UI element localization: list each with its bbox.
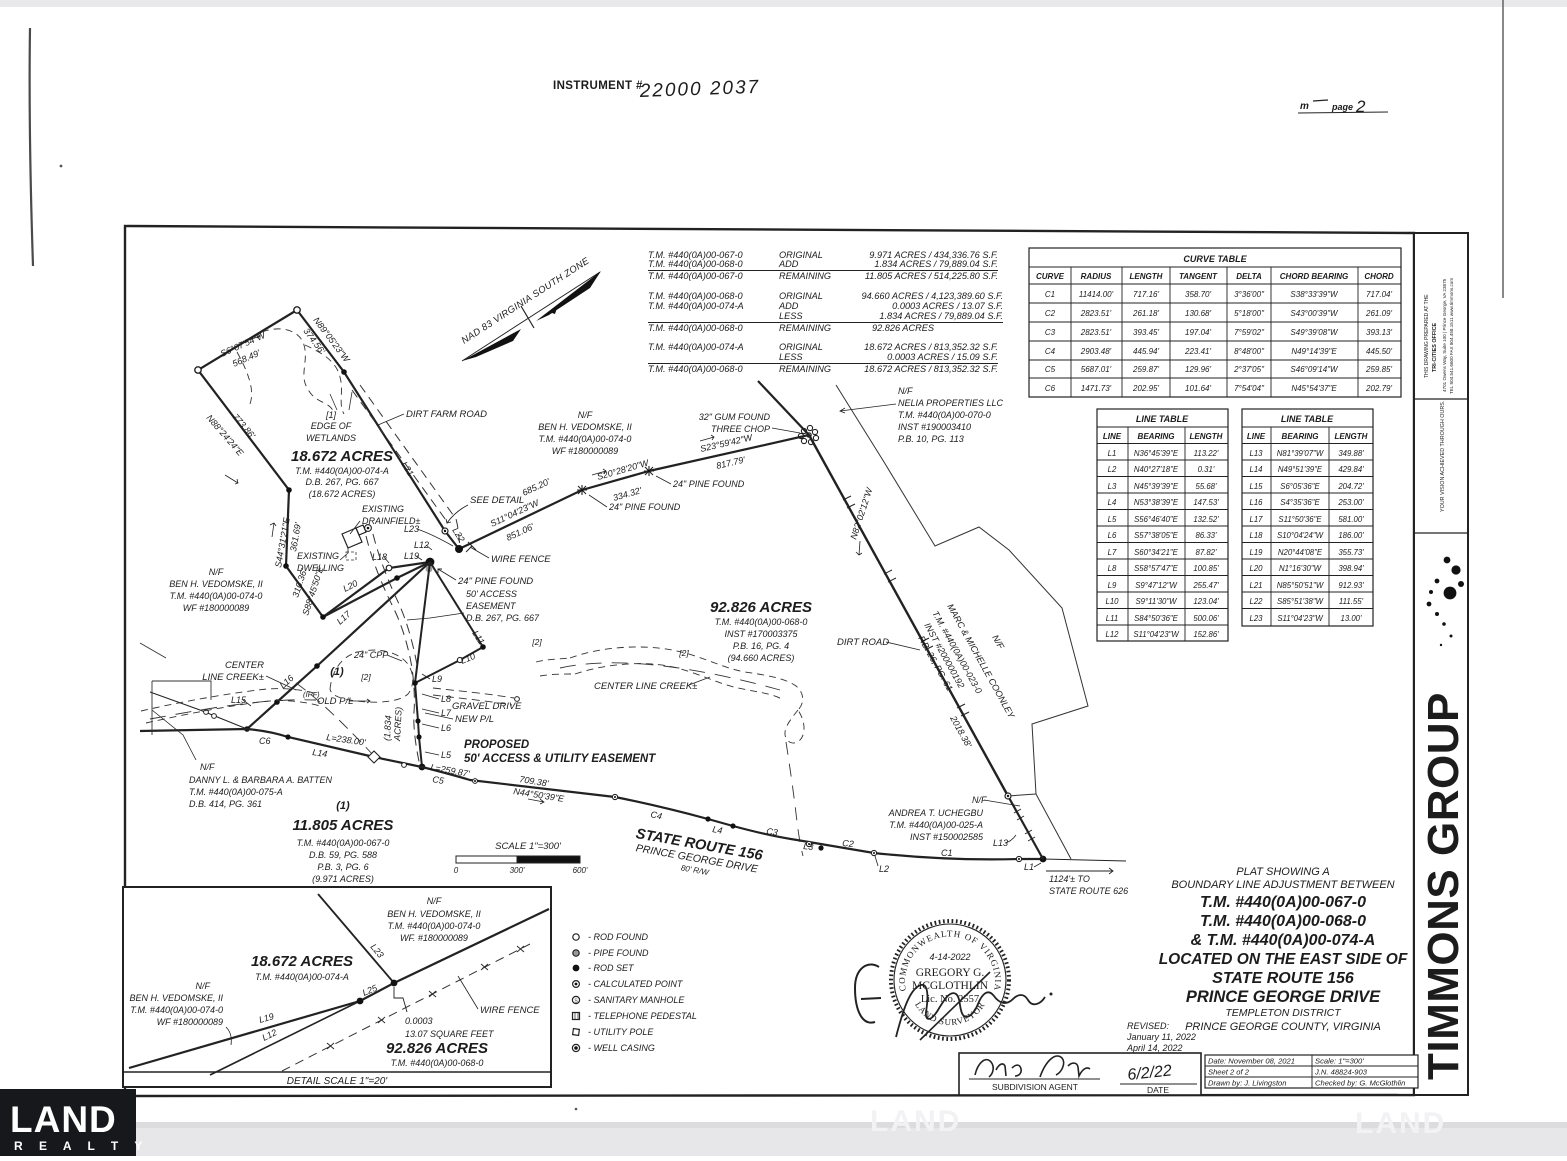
svg-text:LINE: LINE [1247, 432, 1266, 441]
svg-text:TRI-CITIES OFFICE: TRI-CITIES OFFICE [1432, 322, 1438, 372]
svg-text:T.M. #440(0A)00-068-0: T.M. #440(0A)00-068-0 [391, 1058, 484, 1068]
svg-text:S46°09'14"W: S46°09'14"W [1290, 365, 1339, 374]
svg-text:C2: C2 [1045, 309, 1056, 318]
svg-text:11.805 ACRES: 11.805 ACRES [293, 817, 394, 834]
svg-text:BEN H. VEDOMSKE, II: BEN H. VEDOMSKE, II [169, 579, 263, 589]
svg-text:0: 0 [454, 866, 459, 875]
svg-text:L5: L5 [1108, 515, 1117, 524]
svg-text:L10: L10 [1105, 597, 1119, 606]
svg-text:123.04': 123.04' [1193, 597, 1219, 606]
svg-text:T.M. #440(0A)00-067-0: T.M. #440(0A)00-067-0 [297, 838, 390, 848]
svg-text:T.M. #440(0A)00-068-0: T.M. #440(0A)00-068-0 [648, 323, 744, 333]
svg-text:T.M. #440(0A)00-074-0: T.M. #440(0A)00-074-0 [170, 591, 263, 601]
svg-text:TANGENT: TANGENT [1179, 272, 1218, 281]
svg-text:204.72': 204.72' [1337, 482, 1364, 491]
svg-text:L6: L6 [441, 723, 451, 733]
svg-text:92.826 ACRES: 92.826 ACRES [386, 1040, 488, 1057]
svg-text:SUBDIVISION AGENT: SUBDIVISION AGENT [992, 1082, 1078, 1092]
svg-text:L16: L16 [1249, 498, 1263, 507]
svg-text:EASEMENT: EASEMENT [466, 601, 517, 611]
svg-text:18.672 ACRES / 813,352.32 S.F.: 18.672 ACRES / 813,352.32 S.F. [864, 364, 998, 374]
svg-text:T.M. #440(0A)00-070-0: T.M. #440(0A)00-070-0 [898, 410, 991, 420]
svg-text:L22: L22 [1249, 597, 1263, 606]
svg-text:197.04': 197.04' [1185, 328, 1211, 337]
svg-text:L7: L7 [1108, 548, 1117, 557]
svg-text:S58°57'47"E: S58°57'47"E [1134, 564, 1179, 573]
svg-text:L21: L21 [1249, 581, 1262, 590]
svg-text:130.68': 130.68' [1185, 309, 1211, 318]
svg-text:REMAINING: REMAINING [779, 364, 831, 374]
svg-text:[1]: [1] [325, 410, 337, 420]
svg-text:C3: C3 [766, 826, 779, 838]
svg-text:January 11, 2022: January 11, 2022 [1126, 1032, 1196, 1042]
svg-text:259.85': 259.85' [1365, 365, 1392, 374]
svg-text:C2: C2 [842, 838, 854, 849]
svg-text:NEW P/L: NEW P/L [455, 714, 494, 725]
svg-text:S57°38'05"E: S57°38'05"E [1134, 531, 1179, 540]
svg-text:LENGTH: LENGTH [1130, 272, 1163, 281]
svg-text:R E A L T Y: R E A L T Y [14, 1139, 149, 1153]
svg-text:DETAIL SCALE 1"=20': DETAIL SCALE 1"=20' [287, 1076, 389, 1087]
svg-text:L14: L14 [1249, 465, 1263, 474]
svg-text:WETLANDS: WETLANDS [306, 433, 356, 443]
svg-text:DWELLING: DWELLING [297, 563, 344, 573]
svg-text:2903.48': 2903.48' [1080, 347, 1112, 356]
svg-text:N45°54'37"E: N45°54'37"E [1291, 384, 1337, 393]
svg-text:358.70': 358.70' [1185, 290, 1211, 299]
svg-text:32" GUM FOUND: 32" GUM FOUND [699, 412, 771, 422]
svg-text:L4: L4 [712, 824, 724, 836]
svg-text:Date: November 08, 2021: Date: November 08, 2021 [1208, 1057, 1295, 1066]
svg-text:- PIPE FOUND: - PIPE FOUND [588, 948, 649, 958]
svg-text:L13: L13 [1249, 449, 1263, 458]
svg-text:Drawn by: J. Livingston: Drawn by: J. Livingston [1208, 1079, 1287, 1088]
svg-text:N/F: N/F [209, 567, 224, 577]
svg-text:ORIGINAL: ORIGINAL [779, 291, 823, 301]
svg-text:N85°50'51"W: N85°50'51"W [1277, 581, 1324, 590]
svg-text:1.834 ACRES / 79,889.04 S.F: 1.834 ACRES / 79,889.04 S.F. [879, 311, 1003, 321]
svg-text:186.00': 186.00' [1338, 531, 1364, 540]
svg-text:EDGE OF: EDGE OF [311, 421, 352, 431]
svg-text:L11: L11 [1106, 614, 1118, 623]
svg-text:TEMPLETON DISTRICT: TEMPLETON DISTRICT [1225, 1007, 1342, 1019]
svg-text:L19: L19 [404, 551, 419, 561]
svg-text:T.M. #440(0A)00-068-0: T.M. #440(0A)00-068-0 [648, 364, 744, 374]
svg-text:CHORD BEARING: CHORD BEARING [1280, 272, 1348, 281]
svg-text:BEARING: BEARING [1138, 432, 1175, 441]
svg-text:EXISTING: EXISTING [297, 551, 339, 561]
svg-text:DATE: DATE [1147, 1085, 1169, 1095]
svg-text:LAND: LAND [870, 1105, 961, 1138]
svg-text:(18.672 ACRES): (18.672 ACRES) [309, 489, 376, 499]
svg-text:N20°44'08"E: N20°44'08"E [1278, 548, 1323, 557]
svg-text:S9°11'30"W: S9°11'30"W [1135, 597, 1177, 606]
svg-text:912.93': 912.93' [1338, 581, 1364, 590]
svg-text:1124'± TO: 1124'± TO [1049, 874, 1090, 884]
svg-text:5687.01': 5687.01' [1081, 365, 1112, 374]
svg-text:PLAT SHOWING A: PLAT SHOWING A [1236, 866, 1330, 878]
svg-text:EXISTING: EXISTING [362, 504, 404, 514]
svg-text:T.M. #440(0A)00-074-A: T.M. #440(0A)00-074-A [648, 301, 744, 311]
svg-text:5°18'00": 5°18'00" [1234, 309, 1265, 318]
svg-text:18.672 ACRES / 813,352.32 S.F.: 18.672 ACRES / 813,352.32 S.F. [864, 342, 998, 352]
svg-text:SCALE 1"=300': SCALE 1"=300' [495, 841, 562, 852]
svg-text:INST #190003410: INST #190003410 [898, 422, 971, 432]
svg-text:2°37'05": 2°37'05" [1233, 365, 1265, 374]
svg-text:255.47': 255.47' [1192, 581, 1219, 590]
svg-text:N53°38'39"E: N53°38'39"E [1134, 498, 1179, 507]
svg-text:ADD: ADD [778, 301, 799, 311]
svg-text:Sheet 2 of 2: Sheet 2 of 2 [1208, 1068, 1250, 1077]
svg-text:L17: L17 [1249, 515, 1263, 524]
svg-text:GREGORY G.: GREGORY G. [916, 967, 985, 979]
svg-text:L8: L8 [1108, 564, 1117, 573]
svg-text:L5: L5 [441, 750, 452, 760]
svg-text:N/F: N/F [427, 896, 442, 906]
svg-text:18.672 ACRES: 18.672 ACRES [251, 953, 353, 970]
svg-text:259.87': 259.87' [1132, 365, 1159, 374]
svg-text:L19: L19 [1249, 548, 1263, 557]
svg-text:LINE TABLE: LINE TABLE [1281, 414, 1334, 424]
svg-text:92.826 ACRES: 92.826 ACRES [710, 599, 812, 616]
svg-text:24" PINE FOUND: 24" PINE FOUND [457, 576, 533, 587]
svg-text:C1: C1 [941, 848, 953, 858]
svg-text:WF #180000089: WF #180000089 [157, 1017, 223, 1027]
svg-text:WIRE FENCE: WIRE FENCE [480, 1005, 540, 1016]
svg-text:P.B. 10, PG. 113: P.B. 10, PG. 113 [898, 434, 964, 444]
svg-text:REMAINING: REMAINING [779, 271, 831, 281]
svg-text:TEL 804.541.6600 FAX 804.458.: TEL 804.541.6600 FAX 804.458.1511 www.ti… [1449, 278, 1454, 394]
svg-text:C1: C1 [1045, 290, 1055, 299]
svg-text:398.94': 398.94' [1338, 564, 1364, 573]
svg-text:3°36'00": 3°36'00" [1234, 290, 1265, 299]
svg-text:11414.00': 11414.00' [1079, 290, 1114, 299]
svg-text:4-14-2022: 4-14-2022 [929, 952, 970, 962]
svg-text:T.M. #440(0A)00-025-A: T.M. #440(0A)00-025-A [889, 820, 983, 830]
svg-text:THIS DRAWING PREPARED AT THE: THIS DRAWING PREPARED AT THE [1424, 294, 1430, 378]
svg-text:147.53': 147.53' [1193, 498, 1219, 507]
svg-text:THREE CHOP: THREE CHOP [711, 424, 770, 434]
svg-text:(IPF): (IPF) [303, 690, 320, 699]
svg-text:L9: L9 [432, 674, 442, 684]
svg-text:N49°51'39"E: N49°51'39"E [1278, 465, 1323, 474]
svg-text:STATE ROUTE 156: STATE ROUTE 156 [1212, 970, 1354, 987]
svg-text:REVISED:: REVISED: [1127, 1021, 1170, 1031]
svg-text:N/F: N/F [196, 981, 211, 991]
svg-text:0.31': 0.31' [1198, 465, 1215, 474]
svg-text:T.M. #440(0A)00-074-A: T.M. #440(0A)00-074-A [255, 972, 349, 982]
svg-text:LINE TABLE: LINE TABLE [1136, 414, 1189, 424]
svg-text:202.95': 202.95' [1132, 384, 1159, 393]
svg-text:D.B. 414, PG. 361: D.B. 414, PG. 361 [189, 799, 262, 809]
svg-text:N45°39'39"E: N45°39'39"E [1134, 482, 1179, 491]
svg-text:N/F: N/F [898, 386, 913, 396]
svg-text:86.33': 86.33' [1196, 531, 1218, 540]
svg-text:LESS: LESS [779, 352, 803, 362]
svg-text:24" PINE FOUND: 24" PINE FOUND [672, 479, 745, 489]
svg-text:L15: L15 [231, 695, 247, 705]
svg-text:L4: L4 [1108, 498, 1117, 507]
svg-text:L12: L12 [1105, 630, 1119, 639]
svg-text:429.84': 429.84' [1338, 465, 1364, 474]
svg-text:D.B. 267, PG. 667: D.B. 267, PG. 667 [305, 477, 379, 487]
svg-text:S4°35'36"E: S4°35'36"E [1280, 498, 1320, 507]
svg-text:0.0003 ACRES / 13.07: 0.0003 ACRES / 13.07 S.F. [892, 301, 1003, 311]
svg-text:L8: L8 [441, 694, 451, 704]
svg-text:ADD: ADD [778, 259, 799, 269]
svg-text:L1: L1 [1108, 449, 1117, 458]
svg-text:S60°34'21"E: S60°34'21"E [1134, 548, 1179, 557]
svg-text:13.00': 13.00' [1341, 614, 1363, 623]
svg-text:S9°47'12"W: S9°47'12"W [1135, 581, 1177, 590]
svg-text:RADIUS: RADIUS [1081, 272, 1112, 281]
svg-text:S38°33'39"W: S38°33'39"W [1290, 290, 1339, 299]
svg-text:[2]: [2] [678, 648, 689, 658]
svg-text:BEARING: BEARING [1282, 432, 1319, 441]
svg-text:DANNY L. & BARBARA A. BATTEN: DANNY L. & BARBARA A. BATTEN [189, 775, 333, 785]
svg-text:111.55': 111.55' [1339, 597, 1364, 606]
svg-text:C3: C3 [1045, 328, 1056, 337]
svg-text:113.22': 113.22' [1194, 449, 1219, 458]
svg-text:LESS: LESS [779, 311, 803, 321]
svg-text:S84°50'36"E: S84°50'36"E [1134, 614, 1179, 623]
svg-text:P.B. 3, PG. 6: P.B. 3, PG. 6 [317, 862, 368, 872]
svg-text:DIRT ROAD: DIRT ROAD [837, 637, 889, 648]
svg-text:92.826 ACRES: 92.826 ACRES [872, 323, 935, 333]
svg-text:LENGTH: LENGTH [1190, 432, 1223, 441]
svg-text:LAND: LAND [1355, 1107, 1446, 1140]
svg-text:Scale: 1"=300': Scale: 1"=300' [1315, 1057, 1364, 1066]
svg-text:(9.971 ACRES): (9.971 ACRES) [312, 874, 374, 884]
svg-text:S11°04'23"W: S11°04'23"W [1277, 614, 1323, 623]
svg-text:261.09': 261.09' [1365, 309, 1392, 318]
svg-text:[2]: [2] [531, 637, 542, 647]
svg-text:717.16': 717.16' [1133, 290, 1159, 299]
svg-text:- UTILITY POLE: - UTILITY POLE [588, 1027, 654, 1037]
svg-text:600': 600' [573, 866, 588, 875]
svg-text:BOUNDARY LINE ADJUSTMENT BETWE: BOUNDARY LINE ADJUSTMENT BETWEEN [1171, 879, 1394, 891]
svg-text:PRINCE GEORGE COUNTY, VIRGINIA: PRINCE GEORGE COUNTY, VIRGINIA [1185, 1021, 1381, 1033]
svg-text:87.82': 87.82' [1196, 548, 1218, 557]
svg-text:Lic. No. 2557: Lic. No. 2557 [921, 994, 979, 1005]
svg-text:S85°51'38"W: S85°51'38"W [1277, 597, 1324, 606]
svg-text:CHORD: CHORD [1364, 272, 1394, 281]
svg-text:T.M. #440(0A)00-074-A: T.M. #440(0A)00-074-A [295, 466, 389, 476]
svg-text:DELTA: DELTA [1236, 272, 1262, 281]
svg-text:T.M. #440(0A)00-067-0: T.M. #440(0A)00-067-0 [1200, 894, 1366, 911]
svg-text:L14: L14 [312, 747, 328, 759]
svg-text:Checked by: G. McGlothlin: Checked by: G. McGlothlin [1315, 1079, 1405, 1088]
svg-text:L23: L23 [1249, 614, 1263, 623]
svg-text:- ROD FOUND: - ROD FOUND [588, 932, 648, 942]
svg-text:TIMMONS GROUP: TIMMONS GROUP [1419, 692, 1468, 1080]
svg-text:WIRE FENCE: WIRE FENCE [491, 554, 551, 565]
svg-text:REMAINING: REMAINING [779, 323, 831, 333]
svg-text:L9: L9 [1108, 581, 1117, 590]
svg-text:LAND: LAND [10, 1099, 117, 1140]
svg-text:ANDREA T. UCHEGBU: ANDREA T. UCHEGBU [888, 808, 984, 818]
svg-text:T.M. #440(0A)00-068-0: T.M. #440(0A)00-068-0 [648, 259, 744, 269]
svg-text:445.94': 445.94' [1133, 347, 1159, 356]
svg-text:L1: L1 [1024, 862, 1034, 872]
svg-text:PRINCE GEORGE DRIVE: PRINCE GEORGE DRIVE [1186, 988, 1381, 1006]
svg-text:- TELEPHONE PEDESTAL: - TELEPHONE PEDESTAL [588, 1011, 697, 1021]
svg-text:- SANITARY MANHOLE: - SANITARY MANHOLE [588, 995, 685, 1005]
svg-text:94.660 ACRES / 4,123,389.60 S.: 94.660 ACRES / 4,123,389.60 S.F. [862, 291, 1004, 301]
svg-text:N/F: N/F [578, 410, 593, 420]
svg-text:13.07 SQUARE FEET: 13.07 SQUARE FEET [405, 1029, 495, 1039]
svg-text:m: m [1300, 101, 1309, 112]
svg-text:April 14, 2022: April 14, 2022 [1126, 1043, 1183, 1053]
svg-text:355.73': 355.73' [1338, 548, 1364, 557]
svg-text:L20: L20 [1249, 564, 1263, 573]
svg-text:N1°16'30"W: N1°16'30"W [1279, 564, 1322, 573]
svg-text:INSTRUMENT #: INSTRUMENT # [553, 80, 643, 92]
svg-text:LINE: LINE [1103, 432, 1122, 441]
svg-text:CURVE: CURVE [1036, 272, 1065, 281]
svg-text:349.88': 349.88' [1338, 449, 1364, 458]
svg-text:ORIGINAL: ORIGINAL [779, 342, 823, 352]
svg-text:T.M. #440(0A)00-074-0: T.M. #440(0A)00-074-0 [539, 434, 632, 444]
svg-text:N40°27'18"E: N40°27'18"E [1134, 465, 1179, 474]
svg-text:CURVE TABLE: CURVE TABLE [1183, 254, 1247, 264]
svg-text:393.13': 393.13' [1366, 328, 1392, 337]
svg-text:18.672 ACRES: 18.672 ACRES [291, 448, 393, 465]
svg-text:L23: L23 [404, 524, 419, 534]
svg-text:- CALCULATED POINT: - CALCULATED POINT [588, 979, 684, 989]
svg-text:4701 Owens Way, Suite 100 | Pr: 4701 Owens Way, Suite 100 | Prince Georg… [1442, 278, 1447, 392]
svg-text:P.B. 16, PG. 4: P.B. 16, PG. 4 [733, 641, 789, 651]
svg-text:S6°05'36"E: S6°05'36"E [1280, 482, 1320, 491]
svg-text:2: 2 [1355, 97, 1366, 116]
svg-text:GRAVEL DRIVE: GRAVEL DRIVE [452, 701, 522, 712]
svg-text:L18: L18 [1249, 531, 1263, 540]
svg-text:LINE CREEK±: LINE CREEK± [202, 672, 264, 683]
svg-text:T.M. #440(0A)00-074-0: T.M. #440(0A)00-074-0 [130, 1005, 223, 1015]
svg-text:T.M. #440(0A)00-067-0: T.M. #440(0A)00-067-0 [648, 271, 744, 281]
svg-text:L2: L2 [1108, 465, 1117, 474]
svg-text:202.79': 202.79' [1365, 384, 1392, 393]
svg-text:8°48'00": 8°48'00" [1234, 347, 1265, 356]
svg-text:55.68': 55.68' [1196, 482, 1218, 491]
svg-text:T.M. #440(0A)00-074-0: T.M. #440(0A)00-074-0 [388, 921, 481, 931]
svg-text:T.M. #440(0A)00-068-0: T.M. #440(0A)00-068-0 [648, 291, 744, 301]
svg-text:T.M. #440(0A)00-074-A: T.M. #440(0A)00-074-A [648, 342, 744, 352]
svg-text:N36°45'39"E: N36°45'39"E [1134, 449, 1179, 458]
svg-text:L3: L3 [1108, 482, 1117, 491]
svg-text:261.18': 261.18' [1132, 309, 1159, 318]
svg-text:N49°14'39"E: N49°14'39"E [1291, 347, 1337, 356]
svg-text:7°54'04": 7°54'04" [1234, 384, 1265, 393]
svg-text:50' ACCESS: 50' ACCESS [466, 589, 517, 599]
svg-text:OLD P/L: OLD P/L [317, 696, 353, 707]
svg-text:C4: C4 [1045, 347, 1056, 356]
svg-text:ACRES): ACRES) [392, 707, 404, 742]
svg-text:CENTER: CENTER [225, 660, 264, 671]
svg-text:581.00': 581.00' [1338, 515, 1364, 524]
svg-text:1471.73': 1471.73' [1081, 384, 1112, 393]
svg-text:PROPOSED: PROPOSED [464, 739, 529, 751]
svg-text:(1): (1) [330, 666, 344, 678]
svg-text:S49°39'08"W: S49°39'08"W [1290, 328, 1339, 337]
svg-text:132.52': 132.52' [1193, 515, 1219, 524]
svg-text:DIRT FARM ROAD: DIRT FARM ROAD [406, 409, 487, 420]
svg-text:L2: L2 [879, 864, 889, 874]
svg-text:152.86': 152.86' [1193, 630, 1219, 639]
svg-text:129.96': 129.96' [1185, 365, 1211, 374]
svg-text:0.0003 ACRES / 15.09 S.: 0.0003 ACRES / 15.09 S.F. [887, 352, 998, 362]
svg-text:C6: C6 [259, 736, 271, 746]
svg-text:LENGTH: LENGTH [1335, 432, 1368, 441]
svg-text:253.00': 253.00' [1337, 498, 1364, 507]
svg-text:S10°04'24"W: S10°04'24"W [1277, 531, 1324, 540]
svg-text:CENTER LINE CREEK±: CENTER LINE CREEK± [594, 681, 697, 692]
svg-text:L6: L6 [1108, 531, 1117, 540]
svg-text:WF #180000089: WF #180000089 [183, 603, 249, 613]
svg-text:J.N. 48824-903: J.N. 48824-903 [1314, 1068, 1368, 1077]
svg-text:INST #150002585: INST #150002585 [910, 832, 984, 842]
svg-text:NELIA PROPERTIES LLC: NELIA PROPERTIES LLC [898, 398, 1004, 408]
svg-text:N/F: N/F [200, 762, 215, 772]
svg-text:2823.51': 2823.51' [1080, 328, 1112, 337]
svg-text:1.834 ACRES / 79,889.04 S.F.: 1.834 ACRES / 79,889.04 S.F. [874, 259, 998, 269]
svg-text:WF #180000089: WF #180000089 [552, 446, 618, 456]
svg-text:100.85': 100.85' [1193, 564, 1219, 573]
svg-text:C6: C6 [1045, 384, 1056, 393]
svg-text:T.M. #440(0A)00-075-A: T.M. #440(0A)00-075-A [189, 787, 283, 797]
svg-text:11.805 ACRES / 514,225.80 S.F.: 11.805 ACRES / 514,225.80 S.F. [865, 271, 998, 281]
svg-text:500.06': 500.06' [1193, 614, 1219, 623]
svg-text:STATE ROUTE 626: STATE ROUTE 626 [1049, 886, 1128, 896]
svg-text:- ROD SET: - ROD SET [588, 963, 635, 973]
svg-text:445.50': 445.50' [1366, 347, 1392, 356]
svg-text:T.M. #440(0A)00-068-0: T.M. #440(0A)00-068-0 [715, 617, 808, 627]
svg-text:- WELL CASING: - WELL CASING [588, 1043, 655, 1053]
svg-text:300': 300' [510, 866, 525, 875]
svg-text:L15: L15 [1249, 482, 1263, 491]
svg-text:50' ACCESS & UTILITY EASEMENT: 50' ACCESS & UTILITY EASEMENT [464, 753, 656, 765]
svg-text:223.41': 223.41' [1184, 347, 1211, 356]
svg-text:101.64': 101.64' [1185, 384, 1211, 393]
svg-text:N81°39'07"W: N81°39'07"W [1277, 449, 1324, 458]
svg-text:S11°04'23"W: S11°04'23"W [1133, 630, 1179, 639]
svg-text:WF. #180000089: WF. #180000089 [400, 933, 468, 943]
svg-text:page: page [1331, 102, 1353, 112]
svg-text:& T.M. #440(0A)00-074-A: & T.M. #440(0A)00-074-A [1191, 932, 1376, 949]
svg-text:22000 2037: 22000 2037 [638, 77, 760, 102]
svg-text:BEN H. VEDOMSKE, II: BEN H. VEDOMSKE, II [129, 993, 223, 1003]
svg-text:7°59'02": 7°59'02" [1234, 328, 1265, 337]
svg-text:[2]: [2] [360, 672, 371, 682]
svg-text:SEE DETAIL: SEE DETAIL [470, 495, 524, 506]
svg-text:0.0003: 0.0003 [405, 1016, 433, 1026]
svg-text:L12: L12 [414, 540, 429, 550]
svg-text:YOUR VISION ACHIEVED THROUGH O: YOUR VISION ACHIEVED THROUGH OURS. [1440, 401, 1446, 512]
svg-text:D.B. 59, PG. 588: D.B. 59, PG. 588 [309, 850, 377, 860]
svg-text:393.45': 393.45' [1133, 328, 1159, 337]
svg-text:INST #170003375: INST #170003375 [724, 629, 798, 639]
svg-text:T.M. #440(0A)00-068-0: T.M. #440(0A)00-068-0 [1200, 913, 1366, 930]
svg-text:S43°00'39"W: S43°00'39"W [1290, 309, 1339, 318]
svg-text:BEN H. VEDOMSKE, II: BEN H. VEDOMSKE, II [538, 422, 632, 432]
svg-text:LOCATED ON THE EAST SIDE OF: LOCATED ON THE EAST SIDE OF [1159, 951, 1408, 968]
svg-text:24" PINE FOUND: 24" PINE FOUND [608, 502, 681, 512]
svg-text:2823.51': 2823.51' [1080, 309, 1112, 318]
svg-text:717.04': 717.04' [1366, 290, 1392, 299]
svg-text:S56°46'40"E: S56°46'40"E [1134, 515, 1179, 524]
svg-text:S11°50'36"E: S11°50'36"E [1278, 515, 1322, 524]
svg-text:L3: L3 [803, 841, 814, 852]
